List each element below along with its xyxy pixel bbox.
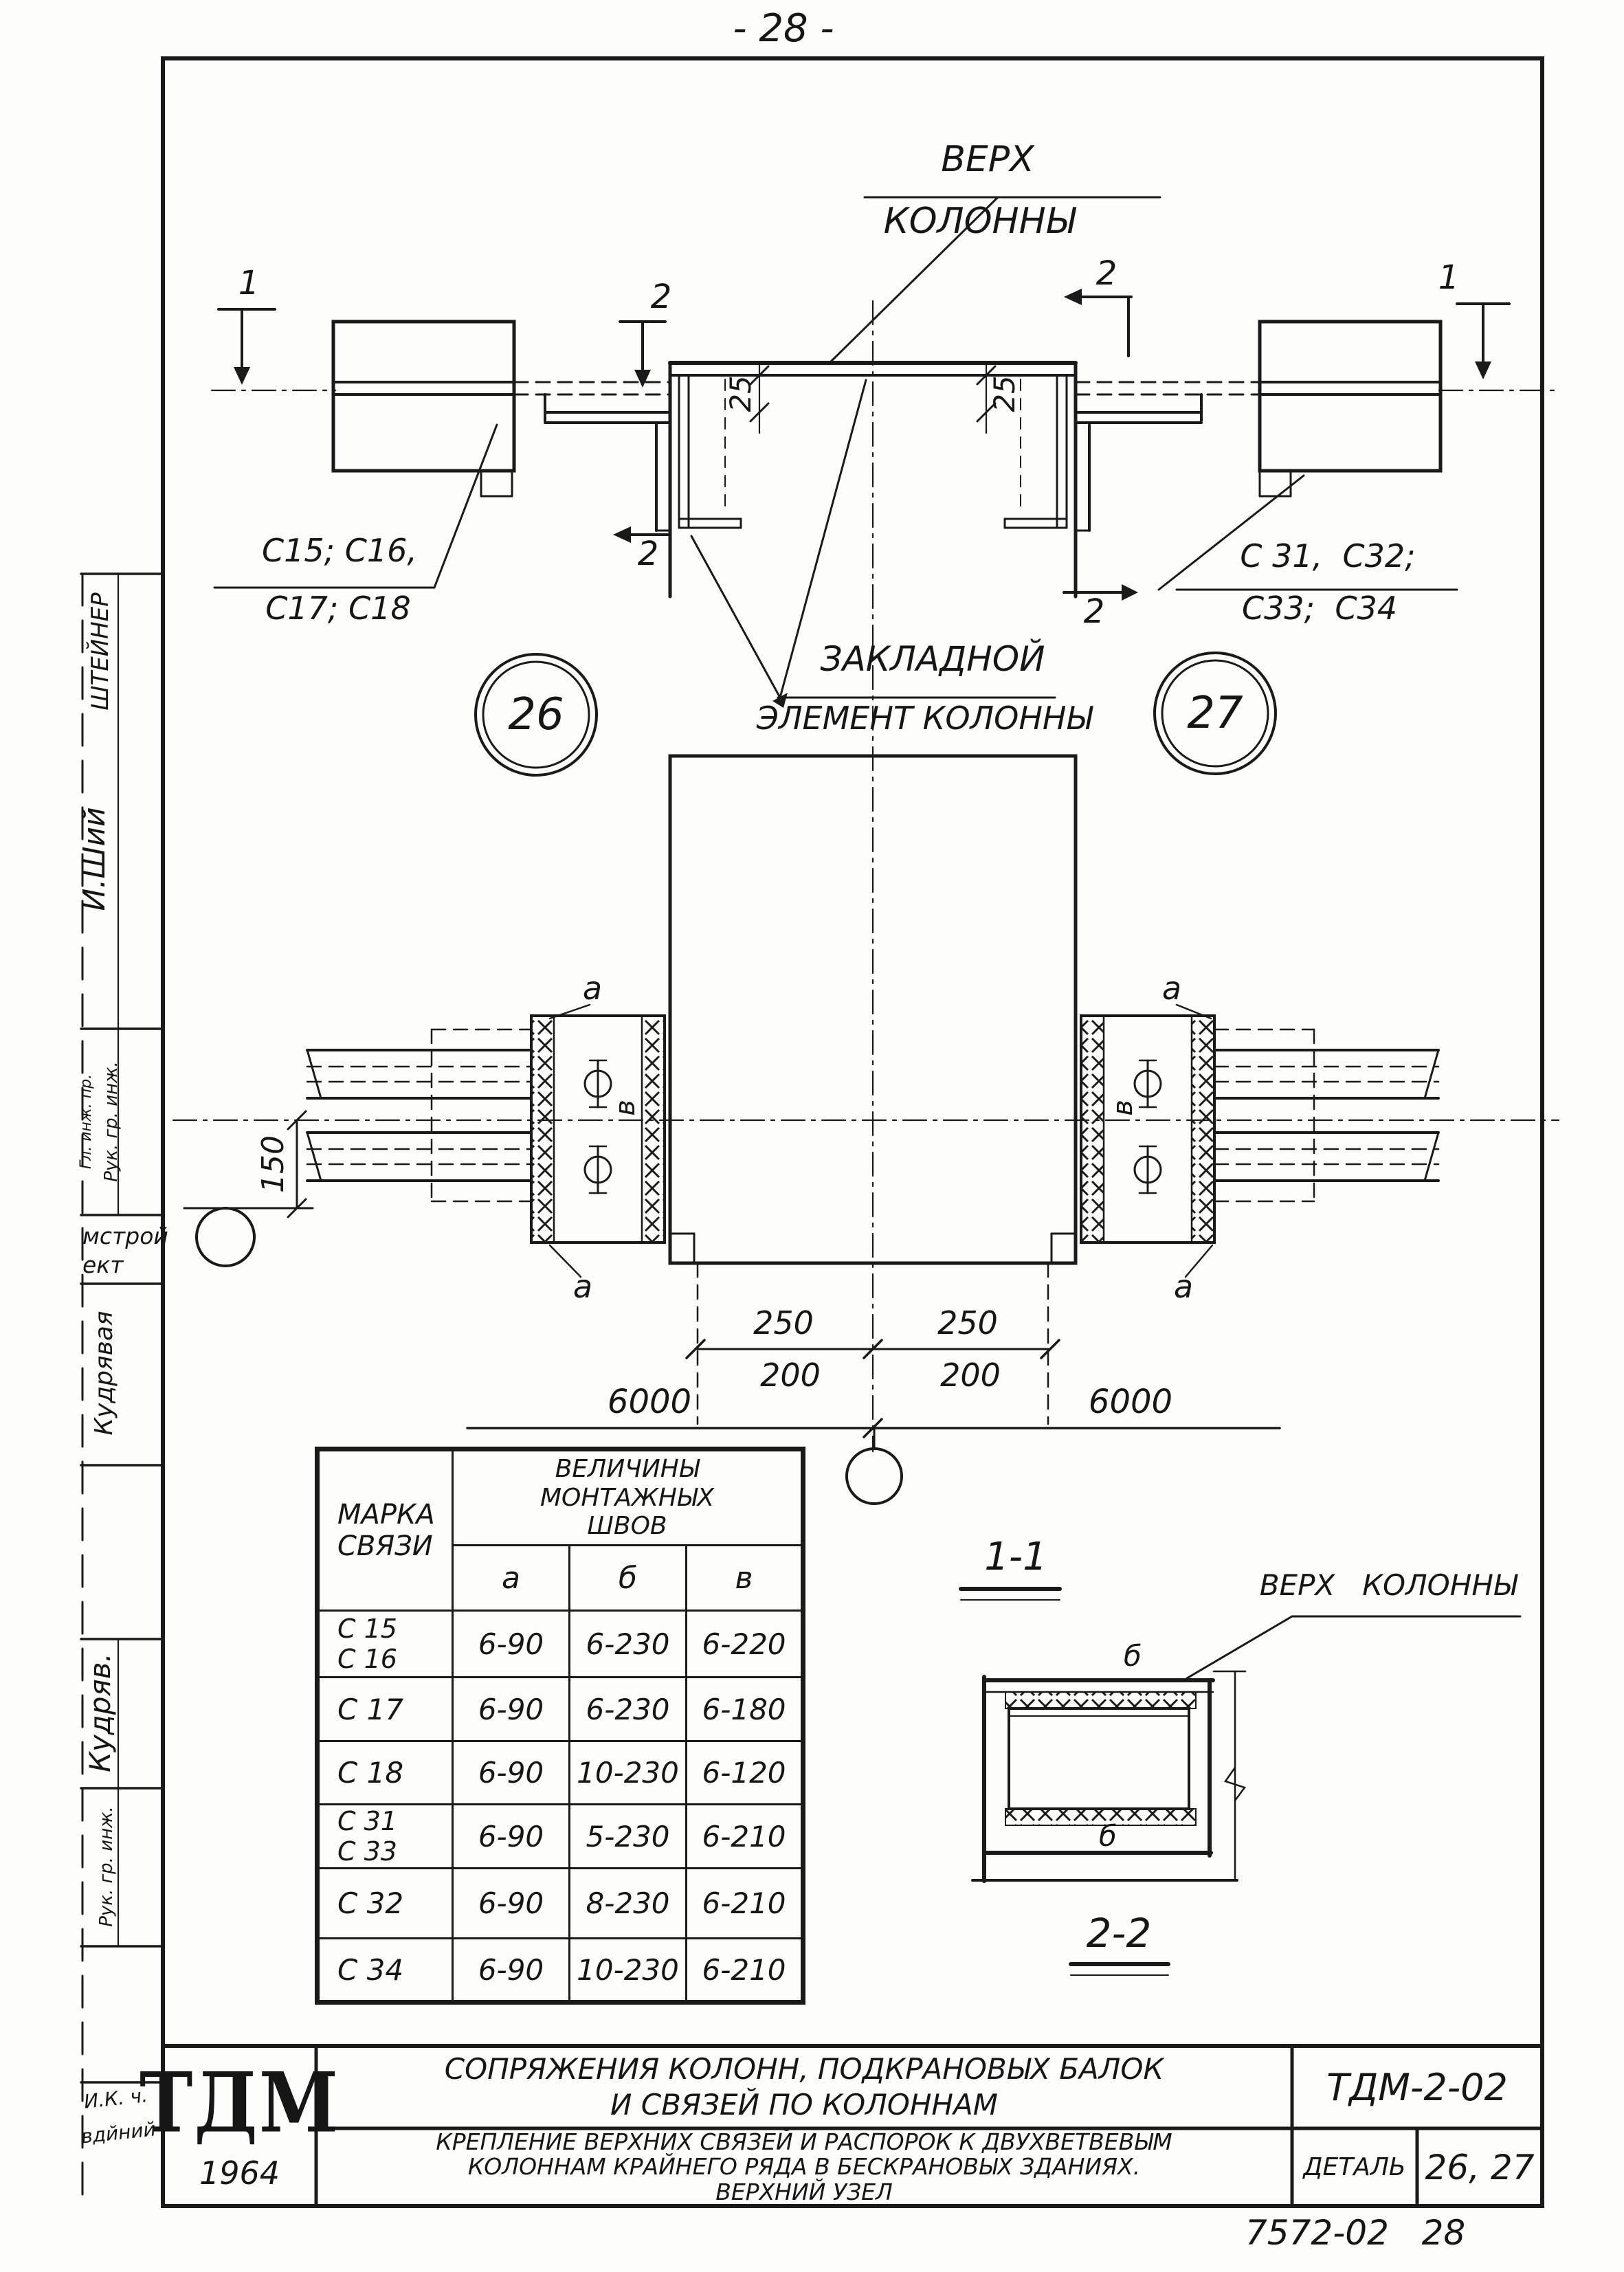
document-code: ТДМ-2-02 [1326, 2066, 1508, 2109]
table-subheader-a: а [453, 1546, 570, 1611]
table-header-values-line3: швов [454, 1512, 801, 1540]
detail-circle-27-label: 27 [1187, 691, 1243, 735]
dim-25-right: 25 [990, 375, 1019, 412]
table-cell: 6-90 [453, 1678, 570, 1741]
section-top-of-column-label: Верх колонны [1260, 1571, 1517, 1600]
table-cell: 6-220 [687, 1611, 803, 1678]
table-subheader-v: в [687, 1546, 803, 1611]
weld-b-top: б [1124, 1642, 1142, 1671]
table-cell: 10-230 [570, 1741, 687, 1805]
section-1-1-label: 1-1 [984, 1538, 1047, 1577]
column-top-label-line1: Верх [941, 142, 1034, 177]
margin-signature-mid: Кудряв. [86, 1653, 115, 1772]
margin-name-kudryavaya: Кудрявая [92, 1311, 117, 1435]
sheet-title-line3: Верхний узел [715, 2180, 893, 2205]
table-row-mark: C 34 [318, 1939, 453, 2003]
table-row-mark: C 17 [318, 1678, 453, 1741]
title-block-logo-cell: ТДМ 1964 [163, 2046, 316, 2206]
margin-stamp-fragment-line1: мстрой [82, 1225, 168, 1247]
section-mark-2-bottom-left: 2 [638, 537, 659, 570]
title-block-sheet-title: Крепление верхних связей и распорок к дв… [316, 2128, 1292, 2206]
left-brace-marks-line1: C15; C16, [262, 535, 417, 566]
table-cell: 6-90 [453, 1611, 570, 1678]
table-header-values: Величины монтажных швов [453, 1449, 803, 1546]
table-header-mark-line2: связи [337, 1530, 452, 1562]
detail-label: Деталь [1303, 2153, 1405, 2181]
sheet-title-line2: колоннам крайнего ряда в бескрановых зда… [468, 2154, 1140, 2179]
title-block-detail-cell: Деталь [1292, 2128, 1417, 2206]
left-brace-marks-line2: C17; C18 [265, 592, 410, 624]
table-cell: 6-180 [687, 1678, 803, 1741]
table-subheader-b: б [570, 1546, 687, 1611]
title-block-series-title: Сопряжения колонн, подкрановых балок и с… [316, 2046, 1292, 2128]
weld-v-left: в [612, 1100, 639, 1116]
drawing-linework [0, 0, 1624, 2272]
right-brace-marks-line1: C 31, C32; [1240, 540, 1415, 572]
title-block-code-cell: ТДМ-2-02 [1292, 2046, 1542, 2128]
weld-gap-table: Марка связи Величины монтажных швов а б … [315, 1447, 805, 2005]
table-row-mark: C 31 C 33 [318, 1805, 453, 1869]
table-row-mark: C 18 [318, 1741, 453, 1805]
table-header-mark-line1: Марка [337, 1499, 452, 1530]
row-mark-line1: C 15 [337, 1614, 452, 1644]
logo-tdm: ТДМ [140, 2054, 340, 2151]
table-header-values-line2: монтажных [454, 1484, 801, 1512]
weld-a-top-left: а [583, 972, 602, 1004]
table-cell: 6-230 [570, 1678, 687, 1741]
right-brace-marks-line2: C33; C34 [1242, 592, 1397, 624]
detail-circle-26-label: 26 [508, 693, 564, 737]
weld-a-bottom-right: а [1174, 1271, 1193, 1302]
margin-name-shteyner: ШТЕЙНЕР [89, 592, 112, 711]
dim-200-right: 200 [940, 1359, 1001, 1391]
dim-200-left: 200 [760, 1359, 821, 1391]
table-cell: 10-230 [570, 1939, 687, 2003]
table-cell: 6-230 [570, 1611, 687, 1678]
margin-role-group-lead: Рук. гр. инж. [102, 1061, 120, 1182]
row-mark-line2: C 33 [337, 1836, 452, 1867]
table-row-mark: C 32 [318, 1869, 453, 1939]
table-row-mark: C 15 C 16 [318, 1611, 453, 1678]
section-mark-1-right: 1 [1438, 261, 1460, 294]
blueprint-sheet: - 28 - Верх колонны Закладной элемент ко… [0, 0, 1624, 2272]
table-cell: 6-90 [453, 1869, 570, 1939]
dim-6000-left: 6000 [608, 1385, 691, 1418]
margin-role-chief-engineer: Гл. инж. пр. [79, 1074, 94, 1169]
page-number: - 28 - [733, 10, 834, 48]
table-header-mark: Марка связи [318, 1449, 453, 1611]
section-mark-1-left: 1 [238, 267, 260, 300]
embed-element-label-line1: Закладной [821, 642, 1045, 676]
table-cell: 6-90 [453, 1939, 570, 2003]
row-mark-line1: C 31 [337, 1806, 452, 1836]
dim-250-right: 250 [937, 1307, 998, 1339]
table-cell: 5-230 [570, 1805, 687, 1869]
section-mark-2-top-right: 2 [1096, 257, 1117, 290]
title-block-detail-numbers-cell: 26, 27 [1417, 2128, 1542, 2206]
logo-year: 1964 [199, 2154, 280, 2192]
dim-150: 150 [258, 1135, 289, 1193]
section-2-2-label: 2-2 [1087, 1913, 1152, 1953]
weld-b-bottom: б [1099, 1822, 1117, 1851]
archive-stamp: 7572-02 28 [1245, 2216, 1465, 2250]
series-title-line1: Сопряжения колонн, подкрановых балок [445, 2051, 1164, 2088]
table-cell: 6-90 [453, 1741, 570, 1805]
detail-numbers: 26, 27 [1425, 2148, 1534, 2187]
dim-25-left: 25 [726, 375, 755, 412]
section-mark-2-bottom-right: 2 [1084, 595, 1105, 628]
table-cell: 6-90 [453, 1805, 570, 1869]
series-title-line2: и связей по колоннам [610, 2087, 998, 2124]
margin-stamp-fragment-line2: ект [82, 1254, 123, 1276]
dim-6000-right: 6000 [1089, 1385, 1172, 1418]
table-cell: 8-230 [570, 1869, 687, 1939]
weld-a-top-right: а [1162, 972, 1181, 1004]
margin-signature-top: И.Ший [80, 807, 110, 911]
table-header-values-line1: Величины [454, 1455, 801, 1483]
section-mark-2-top-left: 2 [651, 280, 672, 313]
table-cell: 6-210 [687, 1939, 803, 2003]
weld-a-bottom-left: а [573, 1271, 592, 1302]
column-top-label-line2: колонны [884, 203, 1076, 239]
dim-250-left: 250 [753, 1307, 814, 1339]
sheet-title-line1: Крепление верхних связей и распорок к дв… [436, 2130, 1172, 2154]
embed-element-label-line2: элемент колонны [757, 702, 1092, 734]
table-cell: 6-120 [687, 1741, 803, 1805]
row-mark-line2: C 16 [337, 1644, 452, 1674]
weld-v-right: в [1109, 1100, 1137, 1116]
table-cell: 6-210 [687, 1805, 803, 1869]
table-cell: 6-210 [687, 1869, 803, 1939]
margin-role-group-lead-2: Рук. гр. инж. [98, 1806, 115, 1927]
